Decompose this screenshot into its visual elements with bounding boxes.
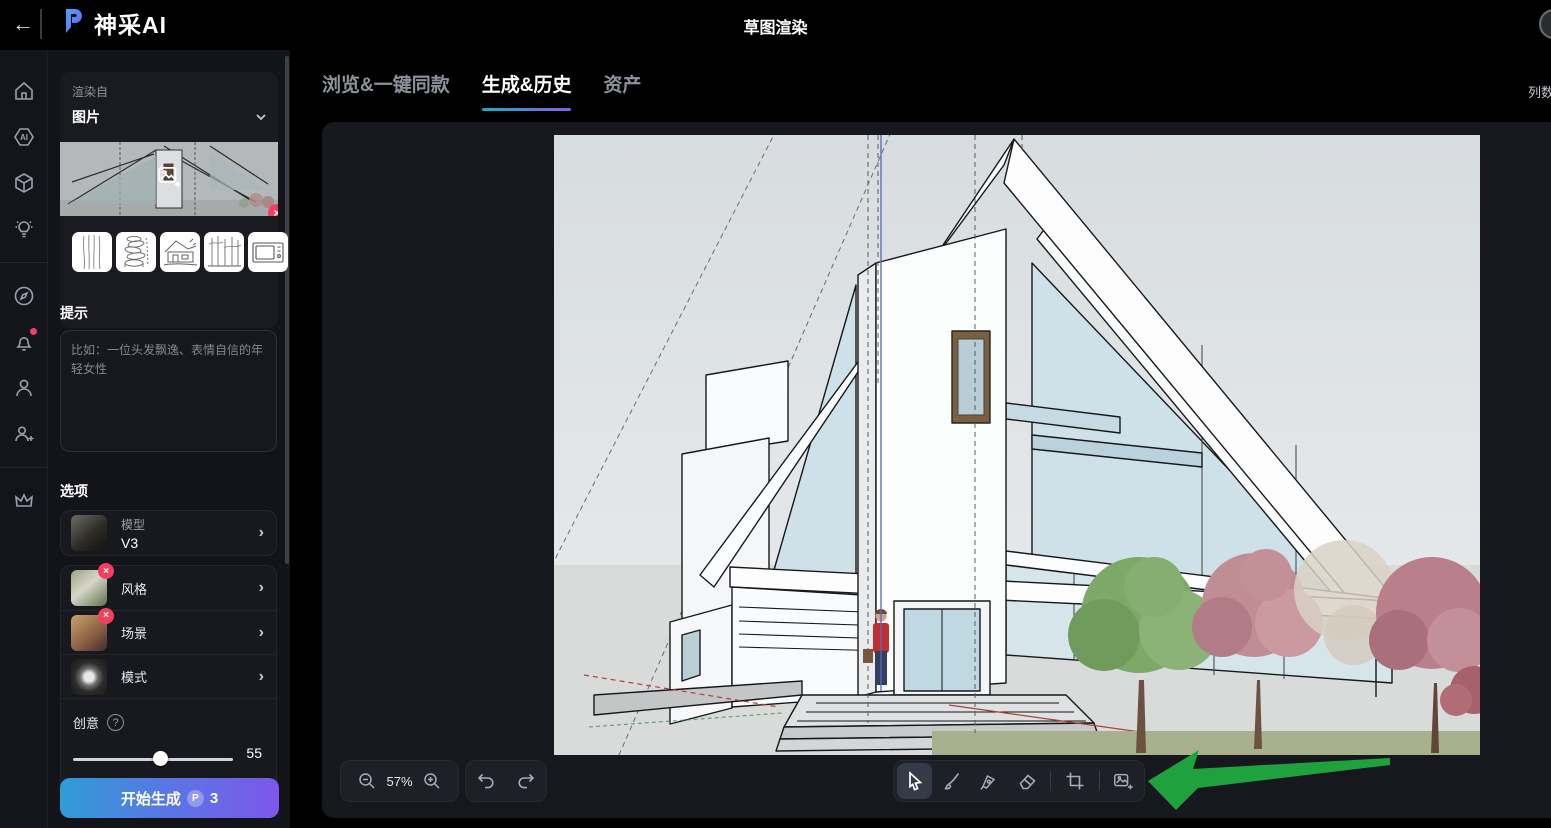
credit-coin-icon: P	[187, 790, 204, 807]
zoom-toolbar: 57%	[340, 760, 459, 802]
remove-style-button[interactable]: ×	[98, 563, 114, 579]
image-add-icon	[156, 164, 182, 195]
prompt-input[interactable]	[60, 330, 277, 452]
sidebar-item-ai-tools[interactable]: AI	[0, 114, 48, 160]
image-add-icon	[1112, 770, 1134, 792]
person-icon	[12, 376, 36, 400]
edit-tools-toolbar	[893, 760, 1145, 802]
remove-scene-button[interactable]: ×	[98, 608, 114, 624]
creativity-value: 55	[246, 745, 262, 761]
sidebar-item-3d-models[interactable]	[0, 160, 48, 206]
close-icon: ×	[103, 566, 109, 577]
creativity-slider[interactable]	[73, 751, 233, 767]
compass-icon	[12, 284, 36, 308]
cube-icon	[12, 171, 36, 195]
crop-icon	[1064, 770, 1086, 792]
source-type-dropdown[interactable]: 图片	[72, 104, 268, 130]
zoom-out-button[interactable]	[351, 765, 383, 797]
panel-scrollbar[interactable]	[285, 56, 289, 564]
redo-button[interactable]	[510, 765, 542, 797]
help-icon[interactable]: ?	[107, 714, 124, 731]
top-bar: ← 神采AI 草图渲染	[0, 0, 1551, 50]
canvas-image[interactable]	[554, 135, 1480, 755]
zoom-in-icon	[422, 771, 442, 791]
sidebar-item-profile[interactable]	[0, 365, 48, 411]
generate-label: 开始生成	[121, 788, 181, 809]
tab-label: 浏览&一键同款	[322, 75, 450, 96]
eraser-tool-button[interactable]	[1009, 763, 1044, 799]
history-toolbar	[465, 760, 547, 802]
architecture-render	[554, 135, 1480, 755]
undo-icon	[475, 770, 497, 792]
home-icon	[12, 79, 36, 103]
rail-divider	[0, 467, 48, 468]
sample-thumb-tower[interactable]	[72, 232, 112, 272]
icon-rail: AI	[0, 50, 48, 828]
style-options-card: × 风格 › × 场景 › 模式 › 创意 ? 55	[60, 565, 277, 802]
pen-tool-button[interactable]	[972, 763, 1007, 799]
close-icon: ×	[273, 206, 278, 216]
mode-thumbnail	[71, 659, 107, 695]
person-add-icon	[12, 422, 36, 446]
sidebar-item-membership[interactable]	[0, 478, 48, 524]
redo-icon	[515, 770, 537, 792]
prompt-label: 提示	[60, 303, 88, 323]
zoom-in-button[interactable]	[416, 765, 448, 797]
lightbulb-icon	[12, 217, 36, 241]
model-option-card: 模型 V3 ›	[60, 510, 277, 556]
toolbar-divider	[1050, 771, 1051, 791]
sample-thumb-house[interactable]	[160, 232, 200, 272]
sidebar-item-inspiration[interactable]	[0, 206, 48, 252]
tab-label: 资产	[603, 75, 641, 96]
tab-browse[interactable]: 浏览&一键同款	[322, 70, 450, 111]
chevron-down-icon	[254, 110, 268, 124]
render-source-card: 渲染自 图片	[60, 72, 278, 328]
chevron-right-icon: ›	[259, 524, 264, 542]
sample-thumb-microwave[interactable]	[248, 232, 288, 272]
model-value: V3	[121, 535, 259, 551]
style-option-row[interactable]: × 风格 ›	[61, 566, 276, 610]
sidebar-item-explore[interactable]	[0, 273, 48, 319]
style-label: 风格	[121, 579, 259, 598]
cursor-icon	[904, 770, 926, 792]
brush-icon	[941, 770, 963, 792]
model-thumbnail	[71, 515, 107, 551]
options-label: 选项	[60, 481, 88, 501]
active-tab-underline	[482, 108, 572, 111]
chevron-right-icon: ›	[259, 624, 264, 642]
source-type-value: 图片	[72, 107, 100, 127]
chevron-right-icon: ›	[259, 579, 264, 597]
brush-tool-button[interactable]	[934, 763, 969, 799]
crop-tool-button[interactable]	[1057, 763, 1092, 799]
tab-assets[interactable]: 资产	[603, 70, 641, 111]
mode-label: 模式	[121, 667, 259, 686]
eraser-icon	[1016, 770, 1038, 792]
crown-icon	[12, 489, 36, 513]
close-icon: ×	[103, 610, 109, 621]
sample-thumbnails	[72, 232, 288, 272]
zoom-out-icon	[357, 771, 377, 791]
tab-label: 生成&历史	[482, 75, 572, 96]
sample-thumb-forest[interactable]	[204, 232, 244, 272]
render-from-label: 渲染自	[72, 83, 108, 100]
canvas-area: 57%	[322, 122, 1551, 818]
zoom-level: 57%	[386, 774, 412, 789]
generate-button[interactable]: 开始生成 P 3	[60, 778, 279, 818]
scene-option-row[interactable]: × 场景 ›	[61, 610, 276, 654]
main-tabs: 浏览&一键同款 生成&历史 资产	[322, 70, 641, 111]
generate-cost: 3	[210, 790, 218, 807]
remove-source-image-button[interactable]: ×	[268, 204, 278, 216]
style-thumbnail: ×	[71, 570, 107, 606]
settings-panel: 渲染自 图片	[48, 50, 290, 828]
sidebar-item-home[interactable]	[0, 68, 48, 114]
model-label: 模型	[121, 516, 259, 533]
ai-icon: AI	[12, 125, 36, 149]
sidebar-item-notifications[interactable]	[0, 319, 48, 365]
undo-button[interactable]	[470, 765, 502, 797]
rail-divider	[0, 262, 48, 263]
creativity-label: 创意	[73, 713, 99, 732]
scene-label: 场景	[121, 623, 259, 642]
sidebar-item-invite[interactable]	[0, 411, 48, 457]
model-option-row[interactable]: 模型 V3 ›	[61, 511, 276, 555]
chevron-right-icon: ›	[259, 668, 264, 686]
svg-text:AI: AI	[20, 133, 28, 142]
sample-thumb-spiral-building[interactable]	[116, 232, 156, 272]
slider-knob[interactable]	[153, 751, 168, 766]
columns-label: 列数	[1528, 82, 1551, 101]
notification-badge	[30, 328, 37, 335]
page-title: 草图渲染	[0, 14, 1551, 38]
scene-thumbnail: ×	[71, 615, 107, 651]
cursor-tool-button[interactable]	[897, 763, 932, 799]
pen-icon	[978, 770, 1000, 792]
source-image-preview[interactable]: ×	[60, 142, 278, 216]
add-image-tool-button[interactable]	[1106, 763, 1141, 799]
mode-option-row[interactable]: 模式 ›	[61, 654, 276, 698]
tab-generate-history[interactable]: 生成&历史	[482, 70, 572, 111]
toolbar-divider	[1099, 771, 1100, 791]
